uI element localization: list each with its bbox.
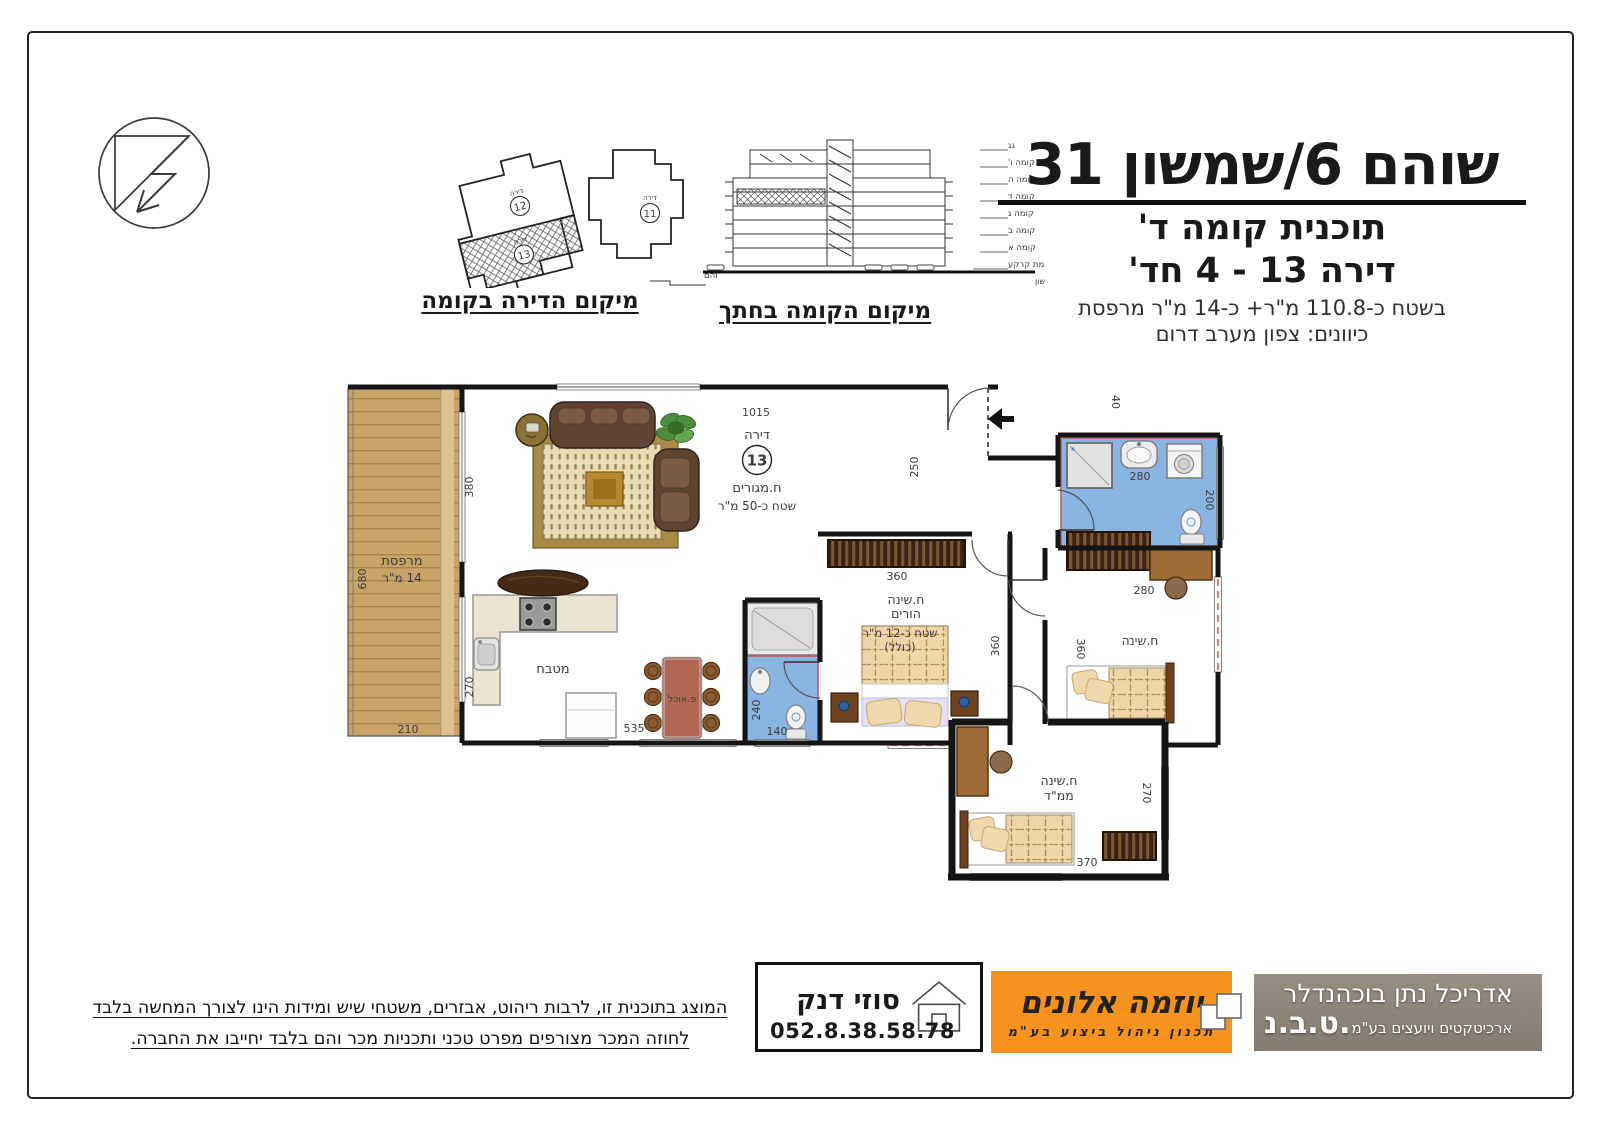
svg-text:פ.אוכל: פ.אוכל	[668, 694, 696, 705]
svg-text:40: 40	[1109, 395, 1122, 409]
company-box: יוזמה אלונים תכנון ניהול ביצוע בע"מ	[991, 971, 1232, 1053]
mamad-closet	[1103, 832, 1156, 860]
disclaimer-line1: המוצג בתוכנית זו, לרבות ריהוט, אבזרים, מ…	[85, 993, 735, 1024]
svg-text:680: 680	[356, 569, 369, 590]
parents-closet	[828, 540, 965, 567]
living-room-furniture	[516, 402, 699, 548]
svg-text:200: 200	[1203, 490, 1216, 511]
svg-text:240: 240	[750, 700, 763, 721]
svg-text:13: 13	[747, 452, 768, 470]
project-title: שוהם 6/שמשון 31	[998, 136, 1526, 205]
svg-text:270: 270	[1140, 783, 1153, 804]
bedroom-desk	[1150, 549, 1212, 580]
directions-line: כיוונים: צפון מערב דרום	[998, 322, 1526, 346]
kitchen-furniture	[473, 570, 617, 738]
svg-text:360: 360	[1074, 639, 1087, 660]
agent-phone: 052.8.38.58.78	[770, 1019, 955, 1043]
svg-text:שטח כ-50 מ"ר: שטח כ-50 מ"ר	[718, 499, 796, 513]
svg-text:ח.מגורים: ח.מגורים	[732, 481, 781, 496]
svg-text:380: 380	[463, 477, 476, 498]
svg-text:ח.שינה: ח.שינה	[1041, 773, 1078, 788]
agent-name: סוזי דנק	[796, 985, 900, 1016]
architect-abbr: ט.ב.נ.	[1264, 1006, 1350, 1041]
company-subtitle: תכנון ניהול ביצוע בע"מ	[1008, 1025, 1216, 1040]
bedroom-furniture	[1067, 532, 1212, 723]
apartment-line: דירה 13 - 4 חד'	[998, 251, 1526, 291]
floor-plan: דירה 13 ח.מגורים שטח כ-50 מ"ר מרפסת 14 מ…	[340, 372, 1245, 897]
floorplan-sheet: דירה 11 דירה 12 דירה 13 רח' שוהם מיקום ה…	[0, 0, 1600, 1131]
svg-text:מטבח: מטבח	[536, 662, 569, 677]
north-arrow-logo	[93, 112, 215, 234]
entry-arrow-icon	[988, 408, 1014, 430]
svg-text:ממ"ד: ממ"ד	[1044, 788, 1074, 803]
disclaimer-line2: לחוזה המכר מצורפים מפרט טכני ותכניות מכר…	[85, 1024, 735, 1055]
company-name: יוזמה אלונים	[1020, 985, 1203, 1021]
svg-text:1015: 1015	[742, 406, 770, 419]
svg-text:הורים: הורים	[891, 606, 921, 621]
mamad-desk	[957, 727, 988, 796]
apartment-location-diagram: דירה 11 דירה 12 דירה 13 רח' שוהם	[388, 120, 718, 288]
disclaimer: המוצג בתוכנית זו, לרבות ריהוט, אבזרים, מ…	[85, 993, 735, 1054]
svg-text:535: 535	[624, 722, 645, 735]
svg-text:דירה: דירה	[744, 428, 770, 443]
svg-text:11: 11	[644, 209, 657, 220]
building-apt12-13: דירה 12 דירה 13	[442, 147, 589, 288]
toilet2	[1181, 510, 1201, 535]
overlapping-squares-icon	[1198, 991, 1244, 1033]
svg-text:(כולל): (כולל)	[884, 640, 915, 654]
section-caption: מיקום הקומה בחתך	[700, 298, 950, 324]
svg-text:280: 280	[1130, 470, 1151, 483]
desk-chair	[990, 751, 1012, 773]
svg-text:270: 270	[463, 677, 476, 698]
section-floor-d-highlight	[737, 189, 825, 204]
svg-text:שטח כ-12 מ"ר: שטח כ-12 מ"ר	[863, 626, 938, 640]
desk-chair	[1165, 577, 1187, 599]
svg-text:360: 360	[887, 570, 908, 583]
title-block: שוהם 6/שמשון 31 תוכנית קומה ד' דירה 13 -…	[998, 136, 1526, 346]
area-line: בשטח כ-110.8 מ"ר+ כ-14 מ"ר מרפסת	[998, 296, 1526, 320]
svg-text:ח.שינה: ח.שינה	[1122, 633, 1159, 648]
building-section-diagram: גג קומה ו' קומה ה קומה ד קומה ג קומה ב ק…	[695, 126, 1045, 298]
svg-text:280: 280	[1134, 584, 1155, 597]
svg-text:140: 140	[767, 725, 788, 738]
svg-text:ח.שינה: ח.שינה	[888, 592, 925, 607]
svg-text:210: 210	[398, 723, 419, 736]
location-caption: מיקום הדירה בקומה	[390, 288, 670, 314]
svg-text:דירה: דירה	[643, 194, 657, 202]
svg-text:מרפסת: מרפסת	[381, 554, 422, 569]
apartment-label: דירה 13 ח.מגורים שטח כ-50 מ"ר	[718, 428, 796, 513]
toilet	[787, 705, 806, 729]
kitchen-table	[498, 570, 588, 596]
svg-text:250: 250	[908, 457, 921, 478]
svg-text:360: 360	[989, 636, 1002, 657]
architect-box: אדריכל נתן בוכהנדלר ט.ב.נ. ארכיטקטים ויו…	[1254, 974, 1542, 1051]
floor-plan-line: תוכנית קומה ד'	[998, 208, 1526, 248]
svg-text:370: 370	[1077, 856, 1098, 869]
refrigerator	[566, 693, 616, 738]
architect-subtitle: ארכיטקטים ויועצים בע"מ	[1351, 1019, 1512, 1037]
svg-text:14 מ"ר: 14 מ"ר	[382, 571, 422, 585]
architect-name: אדריכל נתן בוכהנדלר	[1264, 979, 1532, 1008]
bedroom-closet	[1067, 532, 1150, 570]
agent-box: סוזי דנק 052.8.38.58.78	[755, 962, 983, 1052]
building-apt11: דירה 11	[589, 150, 683, 258]
stove	[520, 598, 556, 630]
